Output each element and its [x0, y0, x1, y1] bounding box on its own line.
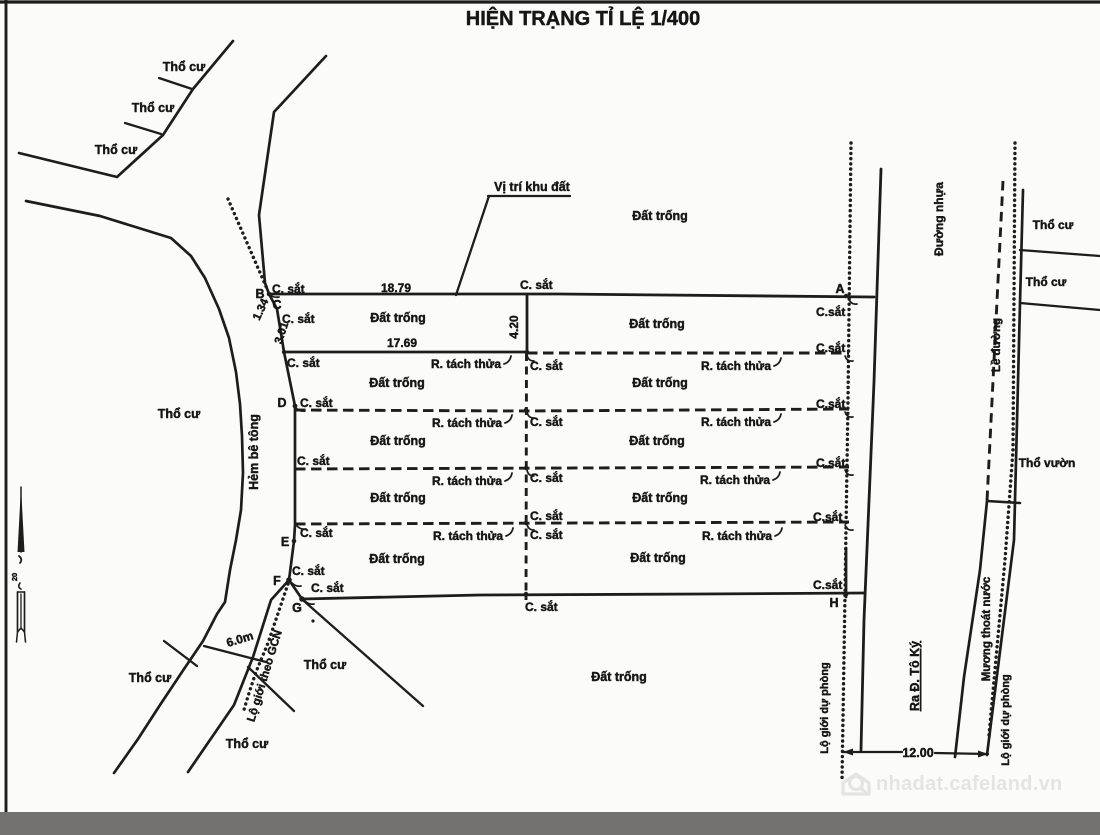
- svg-text:F: F: [273, 574, 281, 588]
- svg-text:Thổ cư: Thổ cư: [129, 671, 172, 685]
- svg-text:C.sắt: C.sắt: [816, 455, 845, 470]
- svg-text:R. tách thửa: R. tách thửa: [431, 357, 501, 371]
- svg-text:R. tách thửa: R. tách thửa: [432, 416, 502, 430]
- svg-text:nhadat.cafeland.vn: nhadat.cafeland.vn: [876, 773, 1063, 795]
- svg-text:Đất trống: Đất trống: [629, 317, 685, 331]
- svg-text:Lộ giới dự phòng: Lộ giới dự phòng: [1000, 674, 1012, 766]
- svg-text:18.79: 18.79: [381, 281, 411, 295]
- svg-text:C. sắt: C. sắt: [530, 508, 563, 523]
- svg-text:Đất trống: Đất trống: [630, 551, 686, 565]
- svg-text:C. sắt: C. sắt: [297, 453, 330, 468]
- svg-text:17.69: 17.69: [387, 336, 417, 350]
- svg-text:Đất trống: Đất trống: [632, 376, 688, 390]
- svg-text:Thổ cư: Thổ cư: [163, 60, 206, 74]
- svg-text:Thổ cư: Thổ cư: [304, 658, 347, 672]
- svg-text:C. sắt: C. sắt: [530, 470, 563, 485]
- svg-text:Thổ cư: Thổ cư: [95, 143, 138, 157]
- svg-text:R. tách thửa: R. tách thửa: [701, 359, 771, 373]
- svg-text:C. sắt: C. sắt: [530, 414, 563, 429]
- svg-text:Lề đường: Lề đường: [991, 318, 1003, 372]
- svg-text:C. sắt: C. sắt: [311, 580, 344, 595]
- svg-text:Thổ cư: Thổ cư: [1026, 275, 1067, 289]
- svg-text:Thổ cư: Thổ cư: [226, 737, 269, 751]
- svg-text:C.sắt: C.sắt: [813, 509, 842, 524]
- svg-text:C. sắt: C. sắt: [287, 355, 320, 370]
- svg-text:E: E: [281, 535, 289, 549]
- svg-text:C. sắt: C. sắt: [525, 599, 558, 614]
- svg-text:C. sắt: C. sắt: [272, 281, 305, 296]
- svg-text:Đất trống: Đất trống: [370, 311, 426, 325]
- svg-text:Thổ cư: Thổ cư: [158, 407, 201, 421]
- svg-text:Đất trống: Đất trống: [370, 491, 426, 505]
- svg-text:R. tách thửa: R. tách thửa: [432, 474, 502, 488]
- svg-text:G: G: [292, 601, 302, 615]
- svg-text:4.20: 4.20: [507, 315, 521, 339]
- svg-text:H: H: [829, 596, 838, 610]
- svg-text:C.sắt: C.sắt: [816, 304, 845, 319]
- svg-text:20: 20: [10, 573, 19, 581]
- svg-text:R. tách thửa: R. tách thửa: [433, 529, 503, 543]
- svg-text:C. sắt: C. sắt: [300, 525, 333, 540]
- svg-text:R. tách thửa: R. tách thửa: [700, 473, 770, 487]
- svg-text:Đường nhựa: Đường nhựa: [932, 182, 946, 256]
- svg-text:Đất trống: Đất trống: [369, 552, 425, 566]
- svg-text:C.sắt: C.sắt: [816, 340, 845, 355]
- svg-text:R. tách thửa: R. tách thửa: [701, 415, 771, 429]
- svg-text:Mương thoát nước: Mương thoát nước: [981, 576, 993, 681]
- svg-text:C.sắt: C.sắt: [816, 396, 845, 411]
- svg-text:Vị trí khu đất: Vị trí khu đất: [494, 180, 571, 194]
- svg-text:D: D: [277, 396, 286, 410]
- svg-text:C: C: [272, 298, 281, 312]
- svg-text:Đất trống: Đất trống: [591, 670, 647, 684]
- svg-text:Thổ cư: Thổ cư: [1033, 218, 1074, 232]
- svg-text:12.00: 12.00: [902, 746, 933, 760]
- svg-text:C. sắt: C. sắt: [292, 563, 325, 578]
- svg-text:Đất trống: Đất trống: [370, 434, 426, 448]
- svg-text:Đất trống: Đất trống: [629, 434, 685, 448]
- svg-text:Đất trống: Đất trống: [632, 209, 688, 223]
- svg-text:HIỆN TRẠNG TỈ LỆ 1/400: HIỆN TRẠNG TỈ LỆ 1/400: [466, 6, 701, 30]
- svg-text:Lộ giới dự phòng: Lộ giới dự phòng: [819, 662, 831, 754]
- svg-text:C. sắt: C. sắt: [300, 395, 333, 410]
- svg-text:R. tách thửa: R. tách thửa: [702, 529, 772, 543]
- svg-text:C.sắt: C.sắt: [813, 577, 842, 592]
- svg-text:Thổ vườn: Thổ vườn: [1019, 456, 1076, 470]
- svg-text:Hẻm bê tông: Hẻm bê tông: [247, 414, 261, 490]
- svg-text:Đất trống: Đất trống: [632, 491, 688, 505]
- svg-text:C. sắt: C. sắt: [530, 358, 563, 373]
- svg-text:C. sắt: C. sắt: [530, 527, 563, 542]
- svg-text:Đất trống: Đất trống: [369, 376, 425, 390]
- svg-text:C. sắt: C. sắt: [520, 277, 553, 292]
- svg-text:A: A: [835, 282, 844, 296]
- svg-text:Ra Đ. Tô Ký: Ra Đ. Tô Ký: [908, 641, 922, 711]
- svg-text:Thổ cư: Thổ cư: [132, 101, 175, 115]
